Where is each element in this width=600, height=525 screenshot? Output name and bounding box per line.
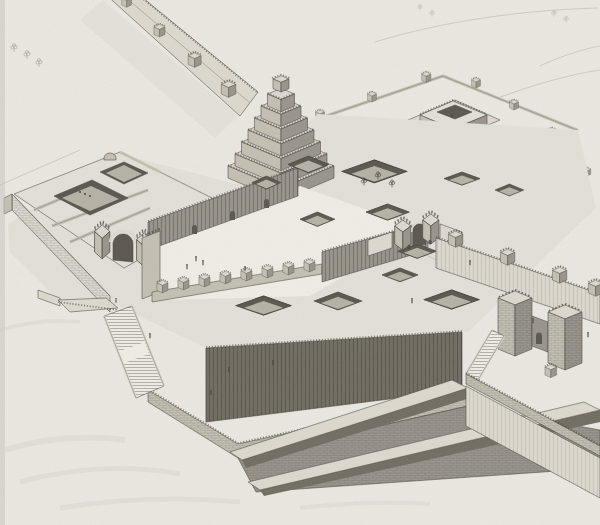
- grain-overlay: [0, 0, 600, 525]
- engraving-plate: [0, 0, 600, 525]
- engraving-canvas: [0, 0, 600, 525]
